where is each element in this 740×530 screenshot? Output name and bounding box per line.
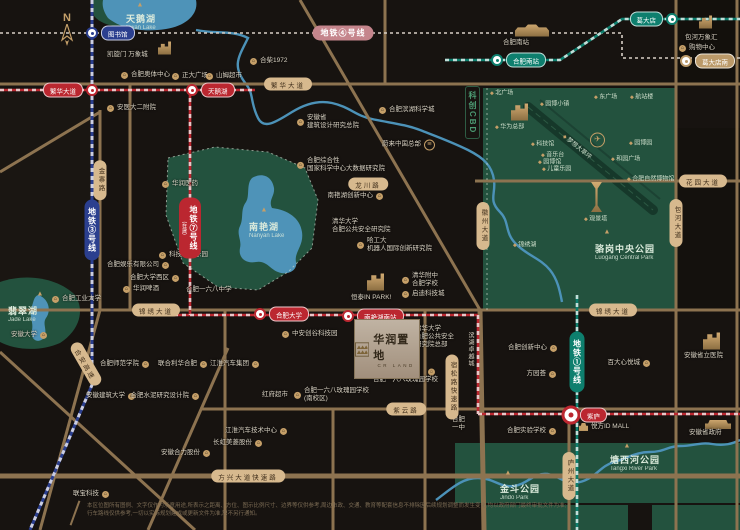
poi: ⌂合肥奥体中心 — [121, 71, 170, 79]
cr-land-logo-icon — [355, 342, 369, 357]
poi — [511, 104, 528, 121]
poi-label: 合柴1972 — [260, 57, 287, 65]
poi: 联合利华合肥⌂ — [158, 360, 207, 368]
metro-station-icon — [86, 84, 98, 96]
 — [347, 315, 350, 318]
poi-label: 合肥一六八中学 — [186, 286, 232, 294]
park-title: 骆岗中央公园Luogang Central Park — [595, 242, 655, 261]
dot-icon: ⌂ — [280, 428, 287, 435]
poi-label: 合肥师范学院 — [100, 360, 139, 368]
nio-icon: ≋ — [424, 140, 435, 151]
poi: ⌂合柴1972 — [250, 57, 287, 65]
poi-label: 安徽省立医院 — [684, 352, 723, 360]
poi-label: 启迪科技城 — [412, 290, 445, 298]
poi-label: 合肥大学西区 — [130, 274, 169, 282]
road-label: 金寨路 — [94, 160, 107, 200]
poi: 安徽合力股份⌂ — [161, 449, 210, 457]
poi: ⌂合肥一六八玫瑰园学校(南校区) — [294, 387, 369, 403]
poi-label: 凯旋门 万象城 — [107, 51, 148, 59]
metro-station-icon — [562, 406, 581, 425]
poi: ⌂山姆超市 — [206, 72, 242, 80]
metro-station-label: 紫庐 — [580, 408, 607, 423]
poi-label: 合肥综合性国家科学中心大数据研究院 — [307, 157, 385, 173]
bigbuilding-icon — [703, 333, 720, 350]
dot-icon: ⌂ — [162, 262, 169, 269]
tent-icon: ▲ — [261, 207, 268, 214]
poi: ⌂哈工大机器人国际创新研究院 — [357, 237, 432, 253]
park-title: 金斗公园Jindo Park — [500, 482, 540, 501]
metro-station-icon — [186, 84, 198, 96]
metro-station-icon — [680, 55, 692, 67]
disclaimer-line-1: 本区位图所有图例、文字仅作为示意用途,所表示之距离、方位、图示比例尺寸、边界等仅… — [87, 503, 735, 511]
road-label: 龙川路 — [348, 178, 388, 191]
dot-icon: ⌂ — [172, 73, 179, 80]
poi: ⌂购物中心 — [679, 44, 715, 52]
metro-station-label: 合肥大学 — [269, 307, 309, 322]
dot-icon: ⌂ — [379, 107, 386, 114]
disclaimer-line-2: 行车路线仅供参考,一切以实际规划建成或更新文件为准,恕不另行通知。 — [87, 511, 735, 519]
poi-label: 华润医药 — [172, 180, 198, 188]
poi-label: 清华大学合肥公共安全研究院总部 — [415, 325, 454, 349]
park-poi-label: ◆ 锦绣湖 — [513, 240, 536, 249]
poi: 合肥师范学院⌂ — [100, 360, 149, 368]
poi-label: 方园荟 — [527, 370, 547, 378]
poi: 安徽省政府 — [689, 429, 722, 437]
poi: ⌂中安创谷科技园 — [282, 330, 338, 338]
poi-label: 合肥工业大学 — [62, 295, 101, 303]
park-name-zh: 骆岗中央公园 — [595, 242, 655, 255]
 — [91, 32, 94, 35]
park-name-zh: 金斗公园 — [500, 482, 540, 495]
 — [671, 18, 674, 21]
park-name-zh: 塘西河公园 — [610, 453, 660, 466]
poi: 南艳湖创新中心⌂ — [328, 192, 384, 200]
poi-label: 华润啤酒 — [133, 285, 159, 293]
poi-label: 购物中心 — [689, 44, 715, 52]
poi-label: 安徽省政府 — [689, 429, 722, 437]
poi-label: 包河万象汇 — [685, 34, 718, 42]
metro-station-label: 葛大店南 — [695, 54, 735, 69]
poi-label: 合肥水泥研究设计院 — [131, 392, 190, 400]
dot-icon: ⌂ — [294, 392, 301, 399]
tent-icon: ▲ — [624, 443, 631, 450]
poi-label: 悦方ID MALL — [591, 423, 629, 431]
dot-icon: ⌂ — [142, 361, 149, 368]
poi: ✈ — [590, 133, 605, 148]
poi: 合肥一六八中学 — [186, 286, 232, 294]
disclaimer: 本区位图所有图例、文字仅作为示意用途,所表示之距离、方位、图示比例尺寸、边界等仅… — [87, 503, 735, 519]
dot-icon: ⌂ — [402, 291, 409, 298]
metro-station-label: 合肥南站 — [506, 53, 546, 68]
metro-station-icon — [86, 27, 98, 39]
poi-label: 江淮汽车集团 — [210, 360, 249, 368]
poi-label: 正大广场 — [182, 72, 208, 80]
poi: ⌂安徽省建筑设计研究总院 — [297, 114, 359, 130]
tent-icon: ▲ — [37, 291, 44, 298]
park-name-zh: 天鹅湖 — [126, 12, 156, 25]
poi — [703, 333, 720, 350]
dot-icon: ⌂ — [192, 393, 199, 400]
park-poi-label: ◆ 园博小镇 — [540, 99, 569, 108]
poi: ⌂ — [428, 369, 435, 376]
building-icon — [699, 16, 712, 29]
park-poi-label: ◆ 航站楼 — [630, 92, 653, 101]
metro-line-label: 地铁④号线 — [313, 26, 374, 41]
 — [569, 413, 574, 418]
poi-label: 清华附中合肥学校 — [412, 272, 438, 288]
compass-n-label: N — [58, 12, 76, 24]
poi-label: 安徽省建筑设计研究总院 — [307, 114, 359, 130]
road-label: 锦绣大道 — [132, 304, 180, 317]
dot-icon: ⌂ — [203, 450, 210, 457]
metro-line-label: 地铁⑦号线(在建) — [179, 198, 201, 259]
dot-icon: ⌂ — [428, 369, 435, 376]
 — [496, 59, 499, 62]
poi — [367, 274, 384, 291]
park-poi-label: ◆ 园博园 — [629, 138, 652, 147]
poi: 联宝科技⌂ — [73, 490, 109, 498]
park-poi-label: ◆ 华为总部 — [495, 122, 524, 131]
road-label: 紫云路 — [386, 403, 426, 416]
poi: 恒泰IN PARK! — [351, 294, 391, 302]
dot-icon: ⌂ — [52, 296, 59, 303]
dot-icon: ⌂ — [200, 361, 207, 368]
poi: ⌂华润医药 — [162, 180, 198, 188]
metro-station-label: 图书馆 — [101, 26, 135, 41]
poi-label: 合肥南站 — [503, 39, 529, 47]
dot-icon: ⌂ — [282, 331, 289, 338]
dot-icon: ⌂ — [549, 428, 556, 435]
metro-line-label: 地铁③号线 — [85, 200, 100, 261]
cr-land-landmark: 华润置地 CR LAND — [355, 320, 419, 378]
poi: 红府超市 — [262, 391, 288, 399]
poi-label: 合肥一六八玫瑰园学校(南校区) — [304, 387, 369, 403]
poi: 安徽建筑大学⌂ — [86, 392, 135, 400]
bigbuilding-icon — [511, 104, 528, 121]
poi: ⌂清华附中合肥学校 — [402, 272, 438, 288]
poi-label: 百大心悦城 — [608, 359, 641, 367]
park-name-zh: 南艳湖 — [249, 220, 284, 233]
poi: 江淮汽车集团⌂ — [210, 360, 259, 368]
poi-label: 合肥实验学校 — [507, 427, 546, 435]
landmark-name-zh: 华润置地 — [373, 331, 419, 363]
poi: 包河万象汇 — [685, 34, 718, 42]
park-title: 南艳湖Nanyan Lake — [249, 220, 284, 239]
dot-icon: ⌂ — [255, 440, 262, 447]
 — [259, 313, 262, 316]
science-cbd-label: 科创CBD — [465, 86, 480, 139]
park-poi-label: ◆ 儿童乐园 — [542, 164, 571, 173]
poi: 安徽省立医院 — [684, 352, 723, 360]
poi-label: 哈工大机器人国际创新研究院 — [367, 237, 432, 253]
metro-station-icon — [342, 310, 354, 322]
poi: 长虹美菱股份⌂ — [213, 439, 262, 447]
park-poi-label: ◆ 东广场 — [594, 92, 617, 101]
poi-label: 安徽合力股份 — [161, 449, 200, 457]
dot-icon: ⌂ — [679, 45, 686, 52]
park-title: 塘西河公园Tangxi River Park — [610, 453, 660, 472]
dot-icon: ⌂ — [402, 277, 409, 284]
poi-label: 安徽大学 — [11, 331, 37, 339]
tent-icon: ▲ — [604, 229, 611, 236]
location-map: N 科创CBD 华润置地 CR LAND 本区位图所有图例、文字仅作为示意用途,… — [0, 0, 740, 530]
poi: 江淮汽车技术中心⌂ — [225, 427, 287, 435]
metro-line-label: 地铁①号线 — [570, 332, 585, 393]
poi — [515, 24, 549, 37]
metro-station-label: 葛大店 — [630, 12, 664, 27]
poi-label: 山姆超市 — [216, 72, 242, 80]
poi-label: 长虹美菱股份 — [213, 439, 252, 447]
park-name-zh: 翡翠湖 — [8, 304, 38, 317]
poi: 合肥大学西区⌂ — [130, 274, 179, 282]
poi — [591, 182, 602, 212]
poi: 合肥水泥研究设计院⌂ — [131, 392, 200, 400]
tower-icon — [591, 182, 602, 212]
park-name-en: Jade Lake — [8, 317, 38, 323]
terminal-icon — [515, 24, 549, 37]
dot-icon: ⌂ — [376, 193, 383, 200]
bigbuilding-icon — [367, 274, 384, 291]
poi-label: 联合利华合肥 — [158, 360, 197, 368]
poi-label: 恒泰IN PARK! — [351, 294, 391, 302]
road-label: 徽州大道 — [477, 202, 490, 250]
park-poi-label: ◆ 科技馆 — [531, 139, 554, 148]
poi-label: 安医大二附院 — [117, 104, 156, 112]
poi: 合肥娱乐有限公司⌂ — [107, 261, 169, 269]
dot-icon: ⌂ — [550, 345, 557, 352]
mall-icon — [579, 423, 588, 431]
dot-icon: ⌂ — [123, 286, 130, 293]
park-poi-label: ◆ 观景塔 — [584, 214, 607, 223]
dot-icon: ⌂ — [250, 58, 257, 65]
poi: 清华大学合肥公共安全研究院总部 — [415, 325, 454, 349]
compass: N — [58, 12, 76, 51]
poi — [158, 42, 171, 55]
landmark-name-en: CR LAND — [373, 363, 419, 368]
 — [91, 89, 94, 92]
metro-station-label: 天鹅湖 — [201, 83, 235, 98]
poi: 清华大学合肥公共安全研究院 — [332, 218, 391, 234]
vertical-label: 滨湖卓越城 — [466, 332, 475, 367]
park-name-en: Luogang Central Park — [595, 255, 655, 261]
tent-icon: ▲ — [505, 470, 512, 477]
road-label: 庐州大道 — [563, 452, 576, 500]
poi: ⌂启迪科技城 — [402, 290, 445, 298]
plane-icon: ✈ — [590, 133, 605, 148]
metro-station-label: 繁华大道 — [43, 83, 83, 98]
dot-icon: ⌂ — [40, 332, 47, 339]
poi — [699, 16, 712, 29]
poi: 蔚来中国总部≋ — [382, 140, 435, 151]
poi-label: 安徽建筑大学 — [86, 392, 125, 400]
metro-station-icon — [491, 54, 503, 66]
park-name-en: Nanyan Lake — [249, 233, 284, 239]
poi: 悦方ID MALL — [579, 423, 629, 431]
metro-station-icon — [254, 308, 266, 320]
poi: 凯旋门 万象城 — [107, 51, 148, 59]
dot-icon: ⌂ — [643, 360, 650, 367]
dot-icon: ⌂ — [121, 72, 128, 79]
metro-station-icon — [666, 13, 678, 25]
poi: 安徽大学⌂ — [11, 331, 47, 339]
 — [191, 89, 194, 92]
poi-label: 合肥娱乐有限公司 — [107, 261, 159, 269]
poi: 合肥创新中心⌂ — [508, 344, 557, 352]
poi-label: 清华大学合肥公共安全研究院 — [332, 218, 391, 234]
poi-label: 蔚来中国总部 — [382, 141, 421, 149]
road-label: 方兴大道快速路 — [211, 470, 285, 483]
poi: ⌂华润啤酒 — [123, 285, 159, 293]
poi: ⌂合肥工业大学 — [52, 295, 101, 303]
poi-label: 南艳湖创新中心 — [328, 192, 374, 200]
gov-icon — [705, 419, 731, 429]
poi: ⌂合肥滨湖科学城 — [379, 106, 435, 114]
poi: ⌂正大广场 — [172, 72, 208, 80]
poi-label: 联宝科技 — [73, 490, 99, 498]
poi-label: 红府超市 — [262, 391, 288, 399]
dot-icon: ⌂ — [206, 73, 213, 80]
park-poi-label: ◆ 和园广场 — [611, 154, 640, 163]
 — [685, 60, 688, 63]
park-title: 翡翠湖Jade Lake — [8, 304, 38, 323]
poi-label: 中安创谷科技园 — [292, 330, 338, 338]
dot-icon: ⌂ — [159, 252, 166, 259]
park-poi-label: ◆ 合肥自然博物馆 — [627, 174, 674, 183]
road-label: 包河大道 — [670, 199, 683, 247]
dot-icon: ⌂ — [252, 361, 259, 368]
road-label: 花园大道 — [679, 175, 727, 188]
tent-icon: ▲ — [137, 2, 144, 9]
compass-needle-icon — [58, 24, 76, 46]
poi: 百大心悦城⌂ — [608, 359, 651, 367]
park-name-en: Jindo Park — [500, 495, 540, 501]
dot-icon: ⌂ — [297, 162, 304, 169]
poi: 合肥南站 — [503, 39, 529, 47]
poi-label: 合肥创新中心 — [508, 344, 547, 352]
dot-icon: ⌂ — [297, 119, 304, 126]
dot-icon: ⌂ — [107, 105, 114, 112]
road-label: 宿松路快速路 — [446, 355, 459, 420]
dot-icon: ⌂ — [102, 491, 109, 498]
poi: ⌂合肥综合性国家科学中心大数据研究院 — [297, 157, 385, 173]
road-label: 繁华大道 — [264, 78, 312, 91]
poi: ⌂安医大二附院 — [107, 104, 156, 112]
park-poi-label: ◆ 北广场 — [490, 88, 513, 97]
poi — [705, 419, 731, 429]
road-label: 锦绣大道 — [589, 304, 637, 317]
poi: 合肥实验学校⌂ — [507, 427, 556, 435]
dot-icon: ⌂ — [172, 275, 179, 282]
poi-label: 江淮汽车技术中心 — [225, 427, 277, 435]
dot-icon: ⌂ — [162, 181, 169, 188]
park-name-en: Tangxi River Park — [610, 466, 660, 472]
poi-label: 合肥奥体中心 — [131, 71, 170, 79]
building-icon — [158, 42, 171, 55]
poi: 方园荟⌂ — [527, 370, 557, 378]
poi-label: 合肥滨湖科学城 — [389, 106, 435, 114]
dot-icon: ⌂ — [549, 371, 556, 378]
dot-icon: ⌂ — [357, 242, 364, 249]
